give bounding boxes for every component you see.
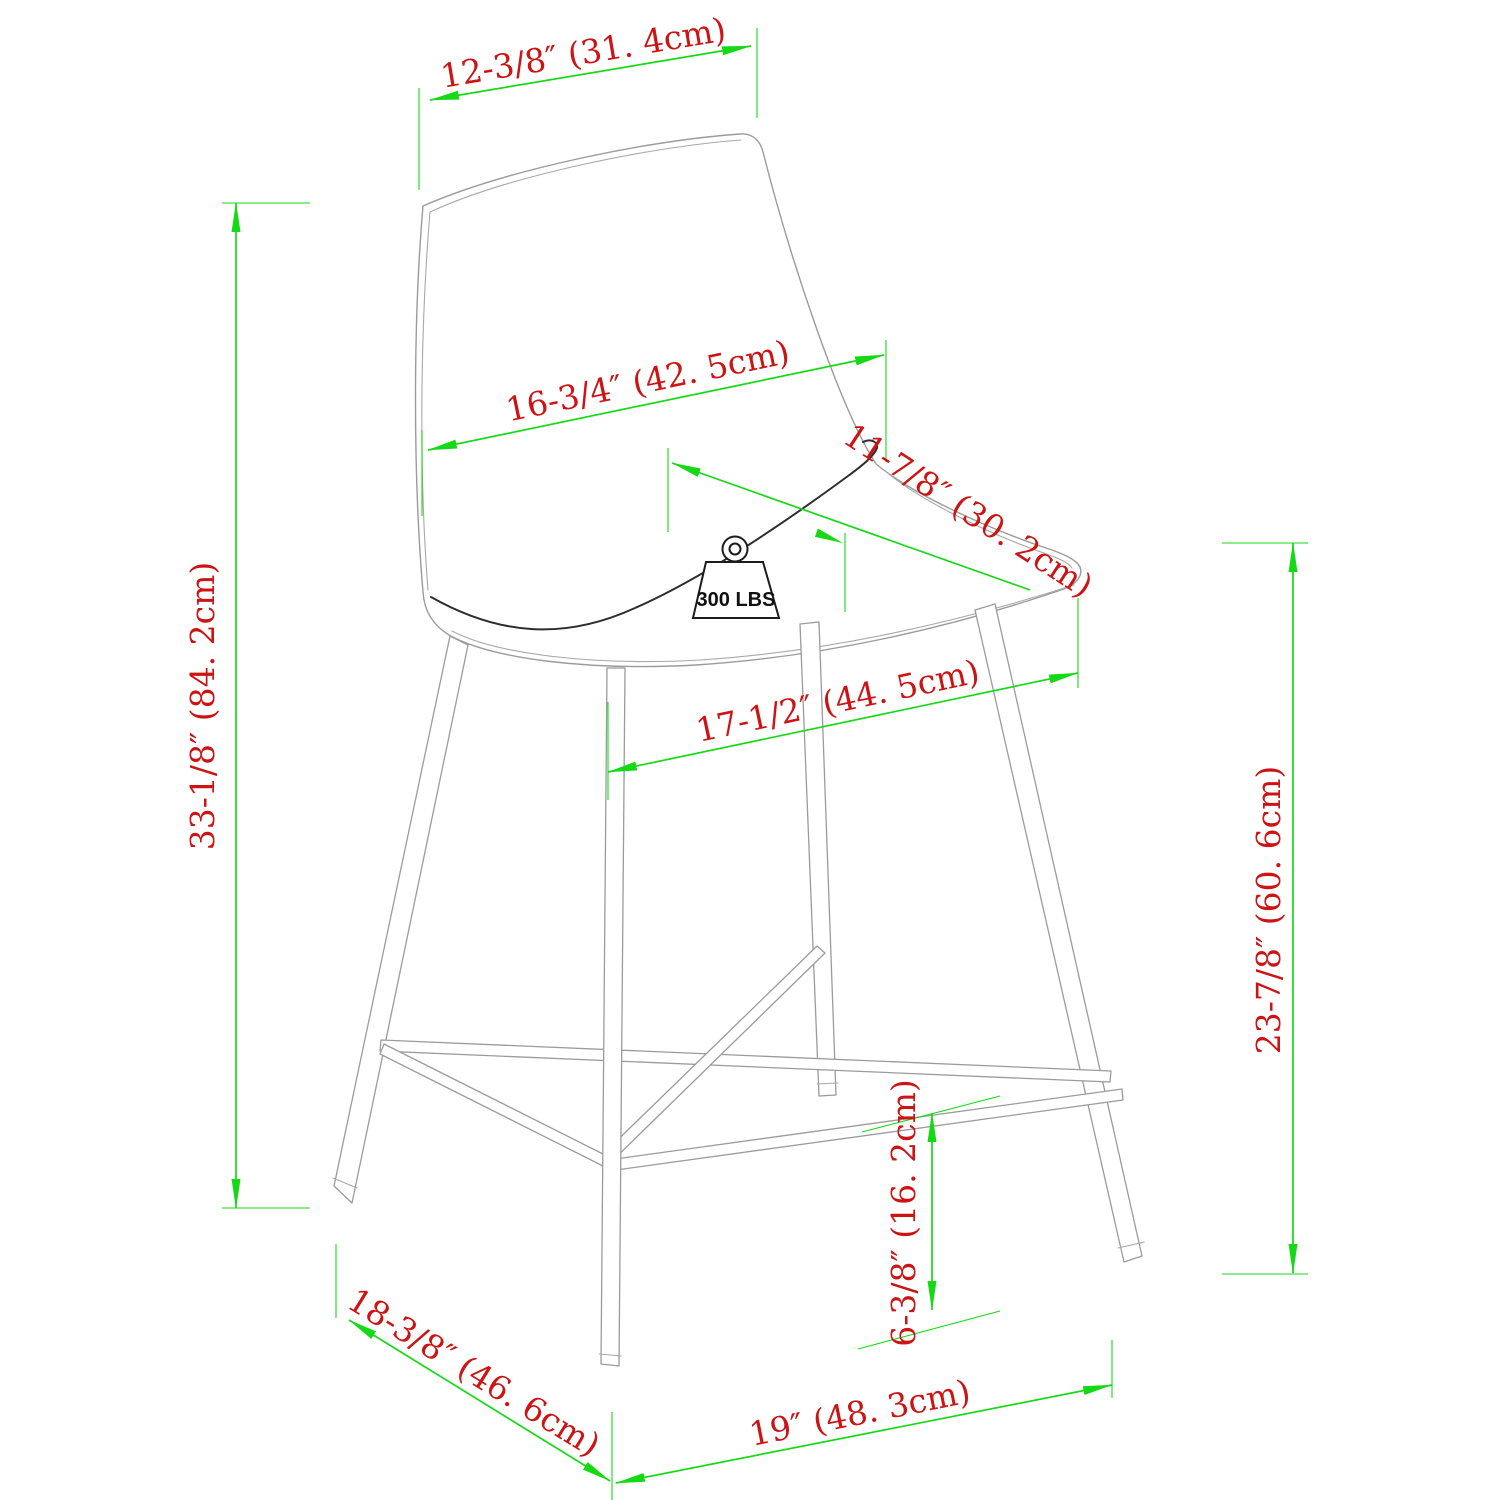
front-leg xyxy=(601,668,625,1366)
dimension-seat-height: 23-7/8″ (60. 6cm) xyxy=(1222,543,1308,1274)
dimension-label: 19″ (48. 3cm) xyxy=(746,1372,974,1454)
dimension-base-width: 19″ (48. 3cm) xyxy=(616,1340,1112,1483)
dimension-label: 12-3/8″ (31. 4cm) xyxy=(438,10,729,96)
weight-capacity-badge: 300 LBS xyxy=(693,537,779,619)
seat-seam xyxy=(431,440,877,629)
right-leg xyxy=(975,604,1142,1262)
dimension-diagram: 300 LBS 12-3/8″ (31. 4cm) 16-3/4″ (42. 5… xyxy=(0,0,1500,1500)
weight-icon-ring-inner xyxy=(730,544,741,555)
extension-line xyxy=(858,1311,1000,1349)
dimension-label: 16-3/4″ (42. 5cm) xyxy=(502,332,792,429)
footrest-bar-left-front xyxy=(380,1044,611,1168)
dimension-back-width: 16-3/4″ (42. 5cm) xyxy=(422,332,886,516)
left-leg xyxy=(334,636,468,1203)
dimension-base-depth: 18-3/8″ (46. 6cm) xyxy=(336,1244,612,1500)
dimension-label: 6-3/8″ (16. 2cm) xyxy=(884,1079,923,1347)
dimension-mid-arrow xyxy=(815,529,843,544)
dimension-label: 11-7/8″ (30. 2cm) xyxy=(837,415,1100,605)
dimension-overall-height: 33-1/8″ (84. 2cm) xyxy=(183,203,310,1208)
weight-capacity-label: 300 LBS xyxy=(697,589,776,611)
dimension-label: 33-1/8″ (84. 2cm) xyxy=(183,562,222,851)
dimension-label: 18-3/8″ (46. 6cm) xyxy=(341,1280,607,1464)
dimension-label: 17-1/2″ (44. 5cm) xyxy=(692,652,982,750)
dimension-line xyxy=(349,1320,610,1481)
footrest-bar-left-right xyxy=(380,1040,1111,1082)
dimension-label: 23-7/8″ (60. 6cm) xyxy=(1249,766,1288,1055)
diagram-canvas: 300 LBS 12-3/8″ (31. 4cm) 16-3/4″ (42. 5… xyxy=(0,0,1500,1500)
chair-drawing xyxy=(333,134,1144,1366)
footrest-bar-front-right xyxy=(615,1089,1123,1170)
